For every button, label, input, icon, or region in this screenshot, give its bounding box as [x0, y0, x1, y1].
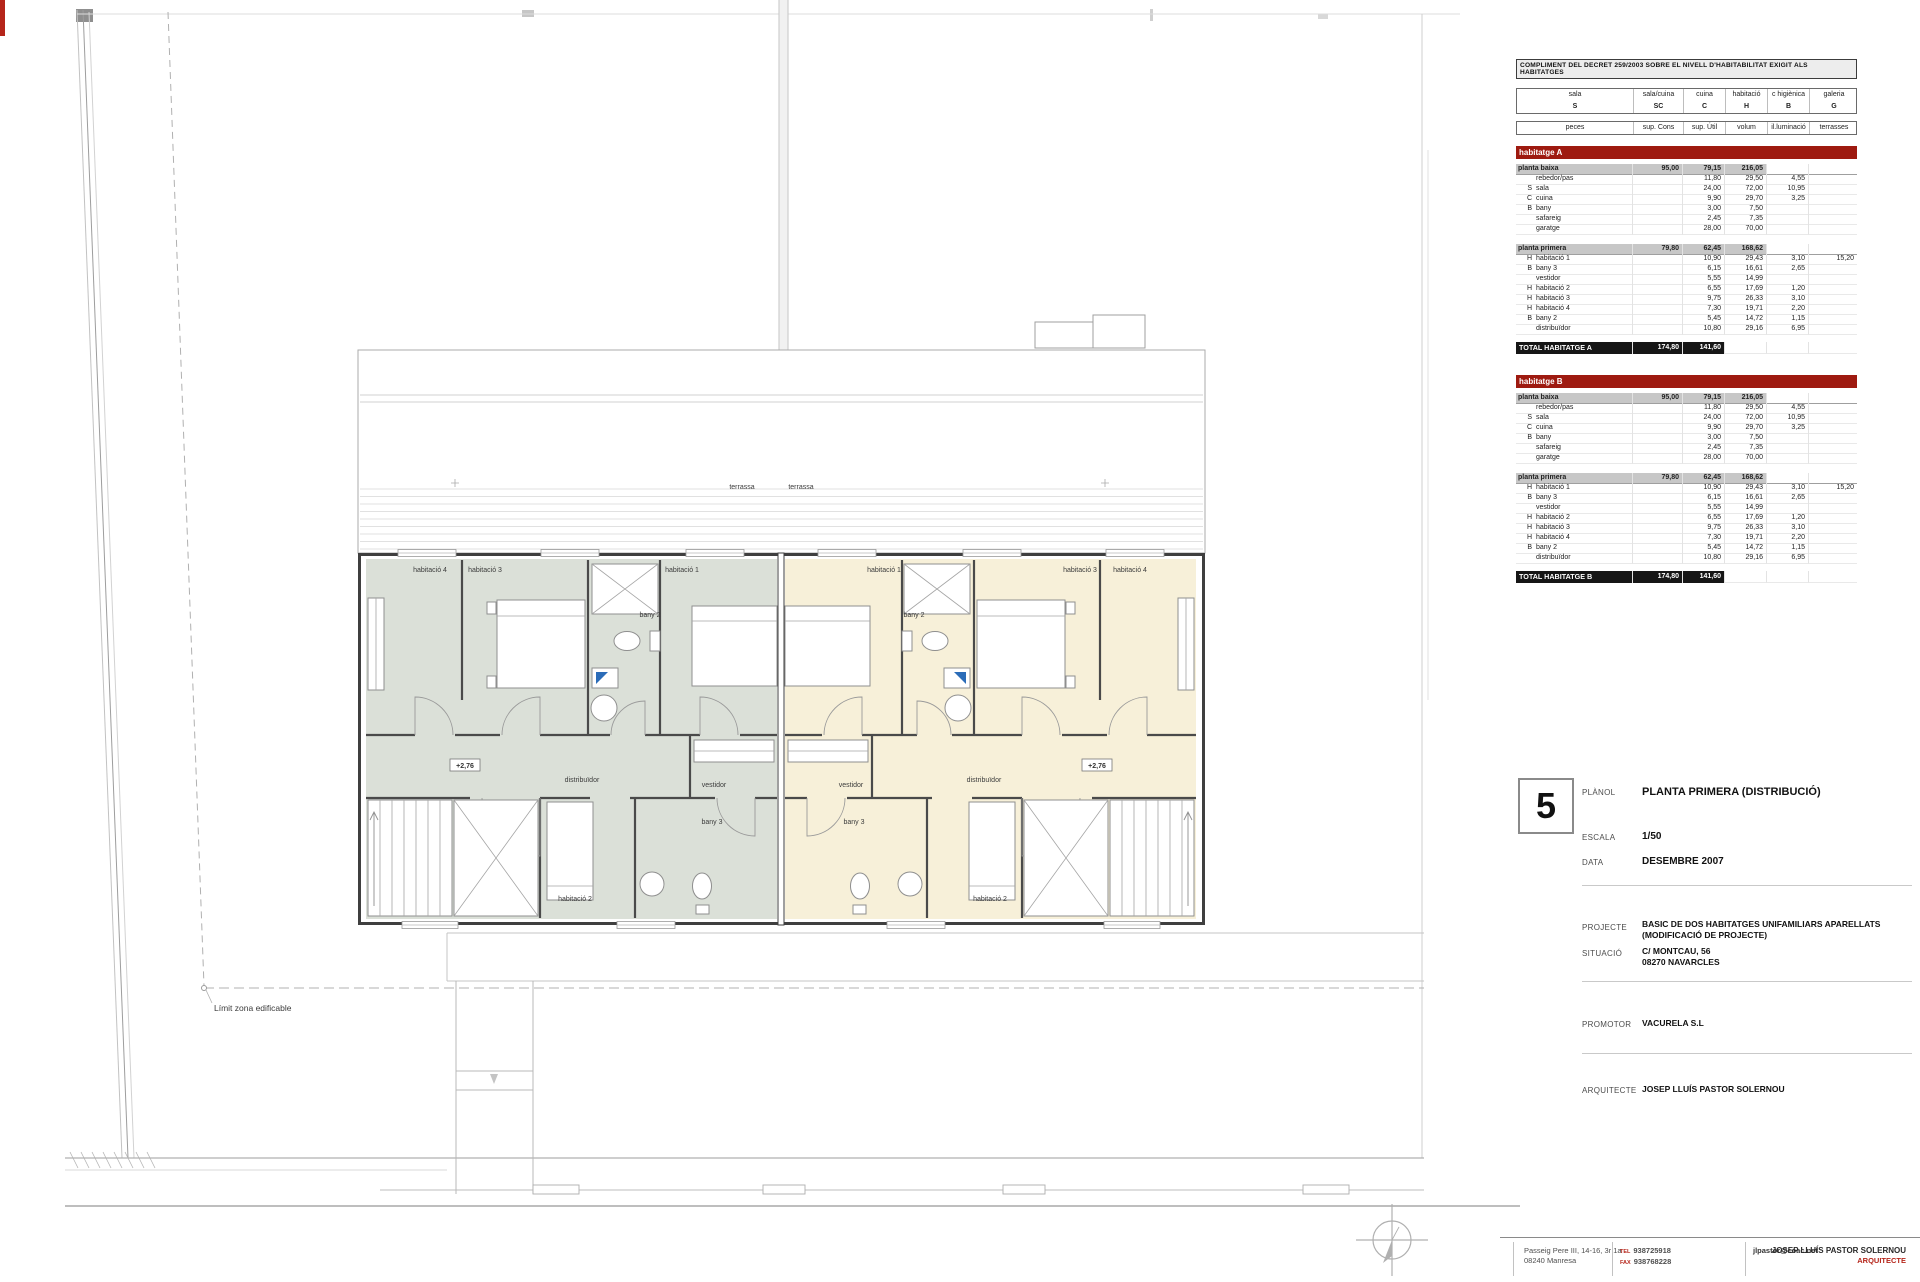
plan-label: habitació 3 — [468, 567, 502, 574]
arquitecte-label: ARQUITECTE — [1582, 1086, 1637, 1095]
header-group: galeria G — [1809, 89, 1858, 113]
table-row: Ccuina9,9029,703,25 — [1516, 423, 1857, 433]
table-row: Hhabitació 110,9029,433,1015,20 — [1516, 483, 1857, 493]
table-row: TOTAL HABITATGE A174,80141,60 — [1516, 342, 1857, 354]
table-cell — [1632, 453, 1682, 464]
footer-strip: Passeig Pere III, 14-16, 3r 1a 08240 Man… — [1500, 1237, 1920, 1282]
compass-icon — [1356, 1204, 1428, 1276]
table-cell — [1808, 553, 1857, 564]
plan-label: Límit zona edificable — [214, 1003, 292, 1013]
ground-floor-projection — [65, 933, 1520, 1206]
compliance-rows: habitatge Aplanta baixa95,0079,15216,05r… — [1516, 146, 1857, 604]
projecte-line1: BASIC DE DOS HABITATGES UNIFAMILIARS APA… — [1642, 919, 1880, 930]
header-group: sala S — [1517, 89, 1633, 113]
table-cell: garatge — [1534, 224, 1632, 235]
plan-label: vestidor — [839, 782, 864, 789]
plan-label: terrassa — [729, 484, 754, 491]
table-spacer — [1516, 234, 1857, 244]
table-cell — [1516, 453, 1534, 464]
plan-label: bany 3 — [701, 819, 722, 826]
plan-label: habitació 3 — [1063, 567, 1097, 574]
plan-label: distribuïdor — [967, 777, 1002, 784]
plan-label: vestidor — [702, 782, 727, 789]
table-cell: 29,16 — [1724, 553, 1766, 564]
table-spacer — [1516, 583, 1857, 604]
situacio-line1: C/ MONTCAU, 56 — [1642, 946, 1710, 957]
table-row: Bbany3,007,50 — [1516, 204, 1857, 214]
table-row: rebedor/pas11,8029,504,55 — [1516, 174, 1857, 184]
situacio-line2: 08270 NAVARCLES — [1642, 957, 1720, 968]
habitatge-banner: habitatge A — [1516, 146, 1857, 159]
arquitecte-value: JOSEP LLUÍS PASTOR SOLERNOU — [1642, 1084, 1785, 1095]
plan-label: habitació 2 — [973, 896, 1007, 903]
table-row: planta primera79,8062,45168,62 — [1516, 473, 1857, 483]
table-row: vestidor5,5514,99 — [1516, 503, 1857, 513]
table-cell: TOTAL HABITATGE B — [1516, 571, 1632, 583]
table-row: Bbany 25,4514,721,15 — [1516, 314, 1857, 324]
plan-label: distribuïdor — [565, 777, 600, 784]
footer-divider — [1513, 1242, 1514, 1276]
table-row: Ccuina9,9029,703,25 — [1516, 194, 1857, 204]
footer-architect: JOSEP LLUÍS PASTOR SOLERNOU ARQUITECTE — [1772, 1246, 1906, 1266]
projecte-line2: (MODIFICACIÓ DE PROJECTE) — [1642, 930, 1767, 941]
table-spacer — [1516, 563, 1857, 571]
table-cell: 10,80 — [1682, 324, 1724, 335]
table-cell: 174,80 — [1632, 571, 1682, 583]
table-row: Ssala24,0072,0010,95 — [1516, 413, 1857, 423]
tel-number: 938725918 — [1633, 1246, 1671, 1255]
plan-label: bany 3 — [843, 819, 864, 826]
habitatge-banner: habitatge B — [1516, 375, 1857, 388]
header-group: habitació H — [1725, 89, 1767, 113]
table-spacer — [1516, 463, 1857, 473]
data-label: DATA — [1582, 858, 1603, 867]
table-cell — [1724, 342, 1766, 354]
table-cell: garatge — [1534, 453, 1632, 464]
table-row: planta baixa95,0079,15216,05 — [1516, 393, 1857, 403]
table-row: rebedor/pas11,8029,504,55 — [1516, 403, 1857, 413]
header-group: c higiènica B — [1767, 89, 1809, 113]
table-row: Bbany 36,1516,612,65 — [1516, 493, 1857, 503]
header-group: cuina C — [1683, 89, 1725, 113]
table-cell: distribuïdor — [1534, 553, 1632, 564]
table-row: Ssala24,0072,0010,95 — [1516, 184, 1857, 194]
table-cell — [1516, 324, 1534, 335]
table-row: planta primera79,8062,45168,62 — [1516, 244, 1857, 254]
promotor-value: VACURELA S.L — [1642, 1018, 1704, 1029]
table-cell — [1766, 571, 1808, 583]
planol-value: PLANTA PRIMERA (DISTRIBUCIÓ) — [1642, 786, 1821, 798]
fax-label: FAX — [1620, 1260, 1631, 1266]
table-row: distribuïdor10,8029,166,95 — [1516, 553, 1857, 563]
promotor-label: PROMOTOR — [1582, 1020, 1631, 1029]
tel-label: TEL — [1620, 1249, 1630, 1255]
table-row: planta baixa95,0079,15216,05 — [1516, 164, 1857, 174]
table-row: distribuïdor10,8029,166,95 — [1516, 324, 1857, 334]
table-cell: 141,60 — [1682, 571, 1724, 583]
table-cell: distribuïdor — [1534, 324, 1632, 335]
title-block-divider — [1582, 981, 1912, 982]
terrace — [358, 315, 1205, 553]
table-row: Bbany 25,4514,721,15 — [1516, 543, 1857, 553]
table-cell — [1766, 342, 1808, 354]
projecte-label: PROJECTE — [1582, 923, 1627, 932]
table-cell: TOTAL HABITATGE A — [1516, 342, 1632, 354]
table-cell: 28,00 — [1682, 453, 1724, 464]
plan-sheet: { "compliance_table": { "title": "COMPLI… — [0, 0, 1920, 1281]
compliance-table: COMPLIMENT DEL DECRET 259/2003 SOBRE EL … — [1516, 59, 1857, 604]
table-cell — [1766, 453, 1808, 464]
title-block-divider — [1582, 1053, 1912, 1054]
data-value: DESEMBRE 2007 — [1642, 856, 1724, 867]
table-row: safareig2,457,35 — [1516, 443, 1857, 453]
elevation-marker: +2,76 — [1088, 763, 1106, 770]
table-cell — [1516, 553, 1534, 564]
table-cell — [1632, 224, 1682, 235]
compliance-table-title: COMPLIMENT DEL DECRET 259/2003 SOBRE EL … — [1516, 59, 1857, 79]
plan-label: habitació 4 — [1113, 567, 1147, 574]
table-cell: 29,16 — [1724, 324, 1766, 335]
table-cell: 6,95 — [1766, 553, 1808, 564]
plan-label: bany 2 — [903, 612, 924, 619]
table-cell — [1808, 453, 1857, 464]
table-row: Hhabitació 26,5517,691,20 — [1516, 284, 1857, 294]
table-cell: 70,00 — [1724, 224, 1766, 235]
escala-label: ESCALA — [1582, 833, 1615, 842]
table-row: garatge28,0070,00 — [1516, 453, 1857, 463]
plan-label: habitació 1 — [867, 567, 901, 574]
table-row: Hhabitació 39,7526,333,10 — [1516, 523, 1857, 533]
sheet-edge-marks — [0, 0, 1328, 36]
table-cell: 70,00 — [1724, 453, 1766, 464]
table-row: TOTAL HABITATGE B174,80141,60 — [1516, 571, 1857, 583]
table-row: vestidor5,5514,99 — [1516, 274, 1857, 284]
floor-plan: terrassaterrassahabitació 4habitació 3ba… — [0, 0, 1520, 1281]
table-cell — [1632, 553, 1682, 564]
table-cell: 10,80 — [1682, 553, 1724, 564]
table-row: Hhabitació 47,3019,712,20 — [1516, 304, 1857, 314]
plan-label: habitació 4 — [413, 567, 447, 574]
table-cell: 6,95 — [1766, 324, 1808, 335]
table-cell: 174,80 — [1632, 342, 1682, 354]
table-cell: 28,00 — [1682, 224, 1724, 235]
table-cell — [1766, 224, 1808, 235]
table-row: Hhabitació 39,7526,333,10 — [1516, 294, 1857, 304]
table-cell — [1516, 224, 1534, 235]
plan-label: habitació 1 — [665, 567, 699, 574]
plan-label: habitació 2 — [558, 896, 592, 903]
table-row: Hhabitació 110,9029,433,1015,20 — [1516, 254, 1857, 264]
plan-label: bany 2 — [639, 612, 660, 619]
planol-label: PLÀNOL — [1582, 788, 1615, 797]
title-block-divider — [1582, 885, 1912, 886]
table-row: Hhabitació 26,5517,691,20 — [1516, 513, 1857, 523]
table-spacer — [1516, 354, 1857, 375]
table-cell — [1808, 342, 1857, 354]
table-cell — [1808, 571, 1857, 583]
plan-label: terrassa — [788, 484, 813, 491]
compliance-table-subheader: peces sup. Cons sup. Útil volum il.lumin… — [1516, 121, 1857, 135]
party-wall — [778, 553, 784, 925]
escala-value: 1/50 — [1642, 831, 1661, 842]
table-row: Bbany 36,1516,612,65 — [1516, 264, 1857, 274]
fax-number: 938768228 — [1634, 1257, 1672, 1266]
footer-phones: TEL938725918 FAX938768228 — [1620, 1246, 1671, 1268]
sheet-number: 5 — [1518, 778, 1574, 834]
table-cell — [1808, 224, 1857, 235]
table-row: Hhabitació 47,3019,712,20 — [1516, 533, 1857, 543]
table-cell — [1808, 324, 1857, 335]
situacio-label: SITUACIÓ — [1582, 949, 1622, 958]
footer-address: Passeig Pere III, 14-16, 3r 1a 08240 Man… — [1524, 1246, 1622, 1266]
table-row: Bbany3,007,50 — [1516, 433, 1857, 443]
table-cell: 141,60 — [1682, 342, 1724, 354]
header-group: sala/cuina SC — [1633, 89, 1683, 113]
table-row: safareig2,457,35 — [1516, 214, 1857, 224]
table-spacer — [1516, 334, 1857, 342]
footer-divider — [1745, 1242, 1746, 1276]
elevation-marker: +2,76 — [456, 763, 474, 770]
table-cell — [1632, 324, 1682, 335]
table-row: garatge28,0070,00 — [1516, 224, 1857, 234]
table-cell — [1724, 571, 1766, 583]
compliance-table-header: sala S sala/cuina SC cuina C habitació H… — [1516, 88, 1857, 114]
